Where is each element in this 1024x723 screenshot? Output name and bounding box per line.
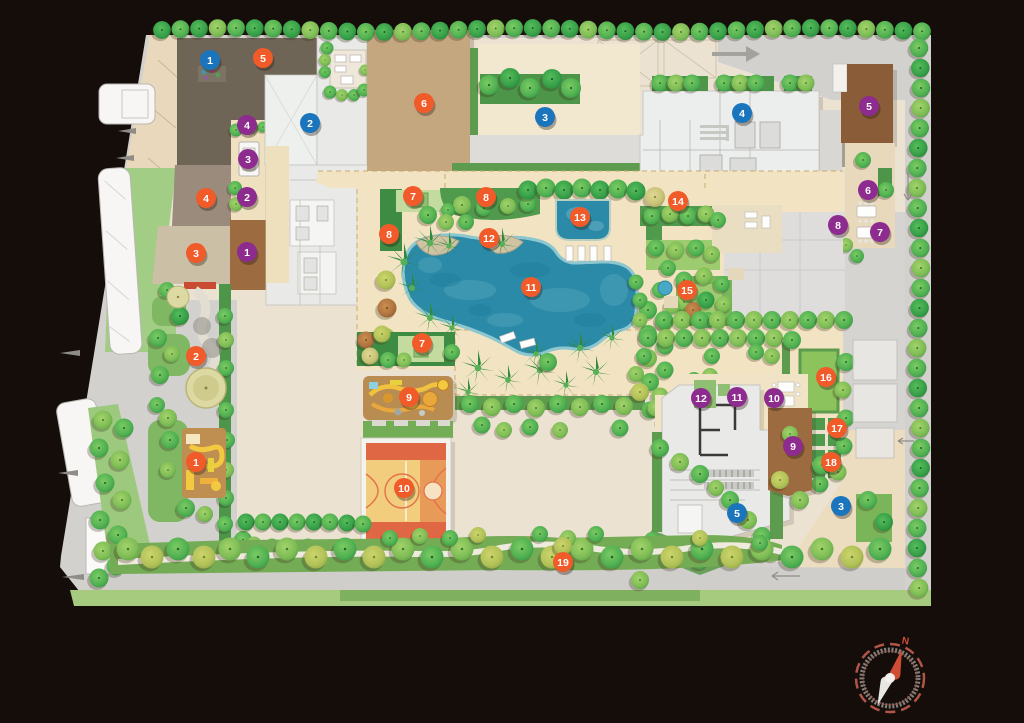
svg-text:18: 18 xyxy=(825,457,837,469)
svg-text:2: 2 xyxy=(193,351,199,363)
svg-text:7: 7 xyxy=(877,227,883,239)
svg-text:1: 1 xyxy=(193,457,199,469)
svg-text:17: 17 xyxy=(831,423,843,435)
svg-text:3: 3 xyxy=(542,112,548,124)
svg-text:19: 19 xyxy=(557,557,569,569)
svg-text:1: 1 xyxy=(244,247,250,259)
svg-text:2: 2 xyxy=(244,192,250,204)
svg-text:11: 11 xyxy=(525,282,536,294)
svg-text:8: 8 xyxy=(386,229,392,241)
svg-text:7: 7 xyxy=(419,338,425,350)
svg-text:7: 7 xyxy=(410,191,416,203)
svg-text:10: 10 xyxy=(768,393,780,405)
svg-text:9: 9 xyxy=(790,441,796,453)
svg-text:2: 2 xyxy=(307,118,313,130)
svg-text:3: 3 xyxy=(838,501,844,513)
svg-text:4: 4 xyxy=(203,193,209,205)
svg-text:3: 3 xyxy=(193,248,199,260)
svg-text:15: 15 xyxy=(681,285,693,297)
svg-text:8: 8 xyxy=(483,192,489,204)
svg-text:16: 16 xyxy=(820,372,832,384)
svg-text:11: 11 xyxy=(731,392,742,404)
svg-text:6: 6 xyxy=(421,98,427,110)
svg-text:4: 4 xyxy=(739,108,745,120)
svg-text:1: 1 xyxy=(207,55,213,67)
svg-text:14: 14 xyxy=(672,196,684,208)
svg-text:13: 13 xyxy=(574,212,586,224)
svg-text:10: 10 xyxy=(398,483,410,495)
svg-text:5: 5 xyxy=(734,508,740,520)
svg-text:9: 9 xyxy=(406,392,412,404)
svg-text:12: 12 xyxy=(695,393,707,405)
svg-text:3: 3 xyxy=(245,154,251,166)
svg-text:8: 8 xyxy=(835,220,841,232)
svg-text:6: 6 xyxy=(865,185,871,197)
svg-text:5: 5 xyxy=(866,101,872,113)
svg-text:4: 4 xyxy=(244,120,250,132)
svg-text:5: 5 xyxy=(260,53,266,65)
svg-text:12: 12 xyxy=(483,233,495,245)
